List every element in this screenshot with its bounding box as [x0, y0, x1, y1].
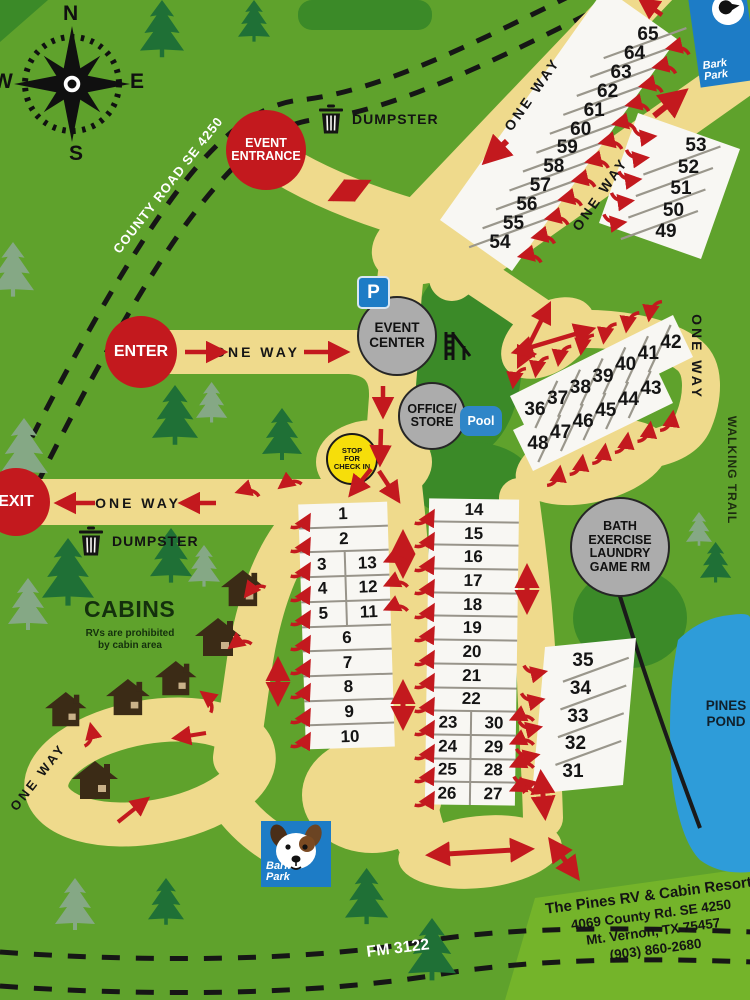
- site-number: 25: [425, 760, 469, 781]
- site-number: 33: [567, 706, 588, 728]
- site-number: 60: [570, 119, 591, 141]
- site-number: 50: [663, 200, 684, 222]
- site-number: 43: [640, 378, 661, 400]
- dumpster-top-label: DUMPSTER: [352, 111, 439, 127]
- parking-sign: P: [357, 276, 390, 309]
- site-number: 35: [572, 650, 593, 672]
- compass-north-label: N: [63, 2, 78, 26]
- site-number: 42: [660, 332, 681, 354]
- site-number: 46: [573, 411, 594, 433]
- compass-east-label: E: [130, 70, 144, 94]
- bath-line1: BATH: [603, 520, 637, 534]
- site-row: 2528: [425, 757, 515, 782]
- site-number: 3: [300, 554, 344, 575]
- site-number: 16: [428, 547, 518, 568]
- site-row: 19: [427, 615, 517, 640]
- site-row: 511: [301, 598, 391, 625]
- site-row: 20: [427, 638, 517, 663]
- office-store-marker: OFFICE/ STORE: [398, 382, 466, 450]
- site-number: 9: [304, 701, 394, 724]
- bark-line2: Park: [266, 872, 290, 883]
- site-number: 52: [678, 157, 699, 179]
- site-row: 21: [427, 662, 517, 687]
- event-entrance-line2: ENTRANCE: [231, 150, 300, 164]
- cabins-note-line2: by cabin area: [72, 640, 188, 652]
- pond-line2: POND: [700, 714, 750, 730]
- bath-line2: EXERCISE: [588, 534, 651, 548]
- site-number: 39: [592, 366, 613, 388]
- cabins-note-line1: RVs are prohibited: [72, 628, 188, 640]
- pond-line1: PINES: [700, 698, 750, 714]
- site-number: 26: [425, 783, 469, 804]
- site-row: 9: [304, 697, 394, 724]
- office-store-line1: OFFICE/: [407, 403, 456, 417]
- site-row: 14: [429, 498, 519, 521]
- site-row: 10: [305, 722, 395, 749]
- event-entrance-line1: EVENT: [245, 137, 287, 151]
- site-number: 37: [547, 388, 568, 410]
- site-number: 34: [570, 678, 591, 700]
- site-number: 30: [472, 713, 516, 734]
- bath-line4: GAME RM: [590, 561, 650, 575]
- site-number: 41: [638, 343, 659, 365]
- site-number: 13: [345, 552, 389, 573]
- site-number: 1: [298, 503, 388, 526]
- site-number: 47: [550, 422, 571, 444]
- stop-line3: CHECK IN: [334, 463, 370, 471]
- site-number: 8: [304, 676, 394, 699]
- site-number: 18: [428, 594, 518, 615]
- site-number: 61: [584, 100, 605, 122]
- site-number: 45: [595, 400, 616, 422]
- site-row: 22: [426, 686, 516, 711]
- site-row: 2429: [426, 733, 516, 758]
- site-number: 4: [301, 579, 345, 600]
- cabins-note: RVs are prohibited by cabin area: [72, 628, 188, 651]
- site-number: 32: [565, 733, 586, 755]
- site-number: 28: [471, 760, 515, 781]
- site-row: 1: [298, 502, 388, 527]
- rv-park-map: N E S W COUNTY ROAD SE 4250 FM 3122 ONE …: [0, 0, 750, 1000]
- site-number: 54: [489, 232, 510, 254]
- site-column-14-30: 1415161718192021222330242925282627: [425, 498, 519, 805]
- site-number: 58: [543, 156, 564, 178]
- site-number: 44: [618, 389, 639, 411]
- site-number: 2: [299, 528, 389, 551]
- site-number: 49: [655, 221, 676, 243]
- bark-park-sign-bottom: Bark Park: [261, 821, 331, 887]
- bark-park-bottom-label: Bark Park: [266, 861, 290, 883]
- enter-marker: ENTER: [105, 316, 177, 388]
- site-row: 2330: [426, 710, 516, 735]
- cabins-title: CABINS: [84, 596, 175, 623]
- site-number: 11: [347, 602, 391, 623]
- one-way-label-exit: ONE WAY: [95, 495, 181, 511]
- site-column-1-13: 12313412511678910: [298, 502, 395, 750]
- site-number: 19: [427, 618, 517, 639]
- site-number: 6: [302, 626, 392, 649]
- one-way-label-right-loop: ONE WAY: [689, 314, 705, 400]
- site-row: 2627: [425, 781, 515, 806]
- compass-south-label: S: [69, 142, 83, 166]
- site-row: 17: [428, 567, 518, 592]
- playground-icon: [438, 326, 478, 366]
- site-number: 24: [426, 736, 470, 757]
- site-number: 15: [429, 523, 519, 544]
- site-number: 53: [685, 135, 706, 157]
- site-number: 17: [428, 570, 518, 591]
- walking-trail-label: WALKING TRAIL: [725, 416, 739, 524]
- site-number: 7: [303, 651, 393, 674]
- site-number: 55: [503, 213, 524, 235]
- site-number: 12: [346, 577, 390, 598]
- stop-check-in-marker: STOP FOR CHECK IN: [326, 433, 378, 485]
- compass-west-label: W: [0, 70, 13, 94]
- site-row: 16: [428, 544, 518, 569]
- site-number: 23: [426, 712, 470, 733]
- office-store-line2: STORE: [411, 416, 454, 430]
- site-row: 412: [300, 574, 390, 601]
- site-number: 63: [611, 62, 632, 84]
- site-number: 62: [597, 81, 618, 103]
- site-number: 5: [301, 603, 345, 624]
- site-row: 6: [302, 623, 392, 650]
- site-number: 14: [429, 499, 519, 520]
- pines-pond-label: PINES POND: [700, 698, 750, 730]
- site-number: 51: [670, 178, 691, 200]
- site-number: 31: [562, 761, 583, 783]
- site-number: 29: [472, 737, 516, 758]
- pool-sign: Pool: [460, 406, 502, 436]
- bath-house-marker: BATH EXERCISE LAUNDRY GAME RM: [570, 497, 670, 597]
- dumpster-top-icon: [318, 102, 344, 135]
- site-number: 38: [570, 377, 591, 399]
- site-row: 15: [429, 520, 519, 545]
- event-entrance-marker: EVENT ENTRANCE: [226, 110, 306, 190]
- site-number: 36: [524, 399, 545, 421]
- event-center-line1: EVENT: [374, 321, 419, 336]
- bath-line3: LAUNDRY: [590, 547, 651, 561]
- one-way-label-enter: ONE WAY: [214, 344, 300, 360]
- site-number: 65: [637, 24, 658, 46]
- site-number: 59: [557, 137, 578, 159]
- site-number: 56: [516, 194, 537, 216]
- site-row: 313: [300, 549, 390, 576]
- dumpster-cabins-icon: [78, 524, 104, 557]
- site-number: 57: [530, 175, 551, 197]
- site-row: 7: [303, 648, 393, 675]
- site-number: 20: [427, 641, 517, 662]
- site-row: 18: [428, 591, 518, 616]
- site-number: 27: [471, 784, 515, 805]
- site-row: 2: [299, 524, 389, 551]
- site-number: 21: [427, 665, 517, 686]
- site-number: 64: [624, 43, 645, 65]
- site-number: 40: [615, 354, 636, 376]
- bark-park-top-label: Bark Park: [702, 57, 729, 83]
- site-number: 22: [426, 689, 516, 710]
- site-number: 10: [305, 725, 395, 748]
- site-row: 8: [304, 673, 394, 700]
- site-number: 48: [527, 433, 548, 455]
- event-center-line2: CENTER: [369, 336, 425, 351]
- dumpster-cabins-label: DUMPSTER: [112, 533, 199, 549]
